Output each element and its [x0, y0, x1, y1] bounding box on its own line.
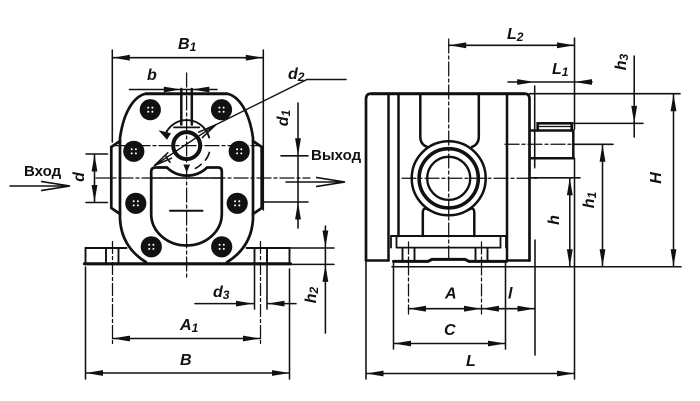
svg-text:Вход: Вход	[24, 163, 62, 180]
svg-text:l: l	[508, 286, 513, 303]
svg-text:Выход: Выход	[311, 147, 362, 164]
svg-text:b: b	[147, 67, 157, 84]
svg-text:L: L	[466, 353, 476, 370]
svg-text:H: H	[648, 172, 665, 184]
svg-text:B: B	[180, 352, 192, 369]
svg-text:A: A	[444, 286, 457, 303]
svg-text:d: d	[71, 171, 88, 182]
svg-text:h: h	[546, 215, 563, 225]
svg-text:C: C	[444, 322, 456, 339]
